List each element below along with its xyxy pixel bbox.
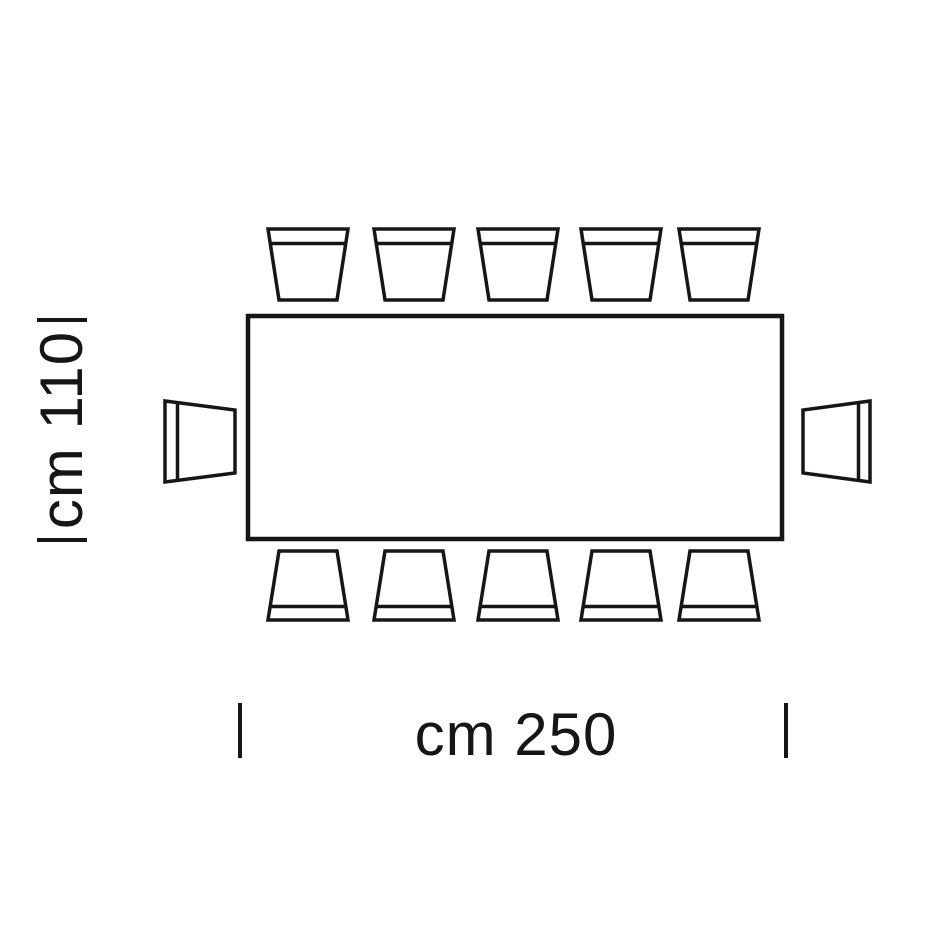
chair-seat-outline — [679, 551, 759, 620]
height-dimension-label: cm 110 — [28, 331, 95, 529]
chair-seat-outline — [478, 551, 558, 620]
width-dimension-label: cm 250 — [415, 701, 618, 768]
chair-top-2 — [374, 229, 454, 300]
diagram-linework — [37, 229, 870, 758]
chair-bottom-1 — [268, 551, 348, 620]
chair-bottom-5 — [679, 551, 759, 620]
chair-top-3 — [478, 229, 558, 300]
chair-seat-outline — [581, 229, 661, 300]
chair-row-bottom — [268, 551, 759, 620]
chair-seat-outline — [268, 229, 348, 300]
chair-top-1 — [268, 229, 348, 300]
chair-seat-outline — [268, 551, 348, 620]
chair-seat-outline — [374, 229, 454, 300]
chair-top-5 — [679, 229, 759, 300]
chair-seat-outline — [478, 229, 558, 300]
chair-seat-outline — [679, 229, 759, 300]
chair-bottom-4 — [581, 551, 661, 620]
chair-seat-outline — [165, 401, 235, 482]
chair-seat-outline — [581, 551, 661, 620]
chair-seat-outline — [374, 551, 454, 620]
chair-top-4 — [581, 229, 661, 300]
chair-bottom-2 — [374, 551, 454, 620]
table-dimensions-diagram: cm 250 cm 110 — [0, 0, 950, 950]
chair-row-top — [268, 229, 759, 300]
chair-right — [803, 401, 870, 482]
diagram-canvas: cm 250 cm 110 — [0, 0, 950, 950]
chair-bottom-3 — [478, 551, 558, 620]
chair-left — [165, 401, 235, 482]
table-outline — [248, 316, 782, 539]
